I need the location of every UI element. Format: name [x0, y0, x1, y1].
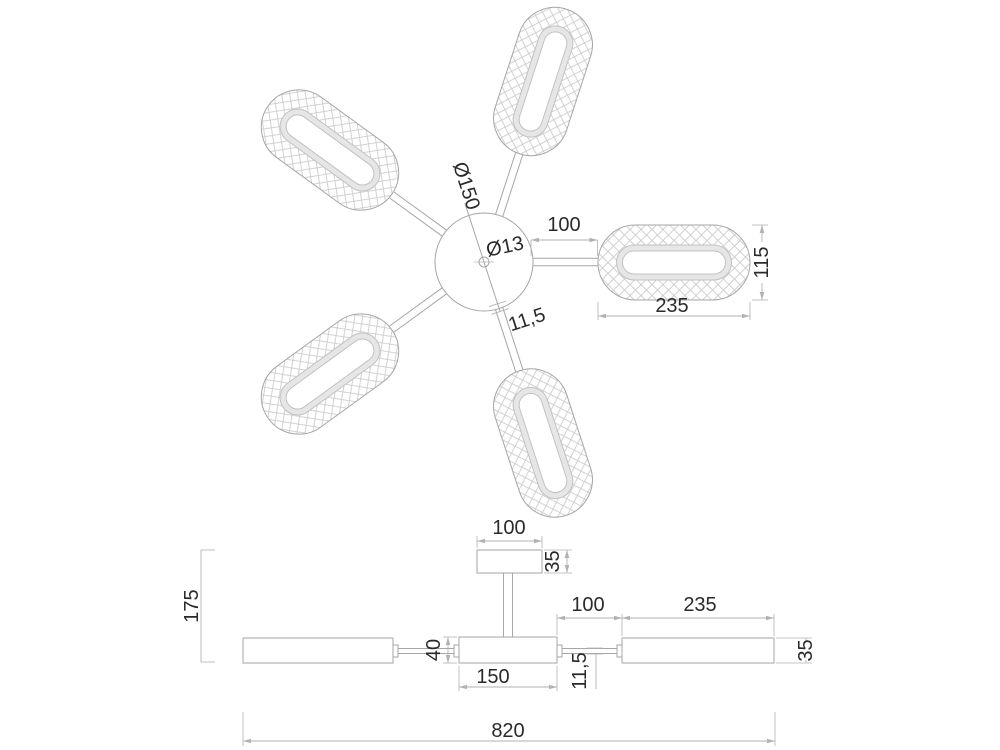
dim-label-arm-length-side: 100	[571, 594, 604, 616]
dim-body-height: 40	[423, 637, 457, 663]
dim-canopy-width: 100	[477, 517, 542, 548]
dim-label-canopy-width: 100	[492, 517, 525, 539]
dim-arm-length-side: 100	[557, 594, 622, 636]
shade-bottom-top-view	[484, 359, 602, 527]
dim-overall-height: 175	[181, 550, 215, 662]
dim-body-width: 150	[459, 666, 557, 691]
dim-label-arm-length-top: 100	[547, 214, 580, 236]
dim-label-shade-length-side: 235	[683, 594, 716, 616]
dim-shade-length-top: 235	[598, 295, 750, 320]
lamp-dimension-drawing: 100 235 115 11,5 Ø150 Ø13	[0, 0, 1000, 750]
top-view: 100 235 115 11,5 Ø150 Ø13	[246, 0, 773, 527]
dim-label-hub-diameter: Ø150	[448, 159, 484, 212]
dim-label-shade-width-top: 115	[751, 247, 773, 279]
body-side-view	[459, 637, 557, 663]
dim-label-shade-length-top: 235	[655, 295, 688, 317]
shade-right-top-view	[598, 225, 750, 300]
dim-canopy-height: 35	[542, 550, 572, 573]
dim-label-overall-width: 820	[491, 720, 524, 742]
dim-shade-length-side: 235	[622, 594, 774, 636]
canopy-side-view	[477, 550, 542, 573]
dim-arm-width-side: 11,5	[569, 648, 603, 690]
shade-upper-left-top-view	[246, 75, 413, 225]
shade-lower-left-top-view	[246, 299, 413, 449]
dim-label-shade-height-side: 35	[795, 639, 817, 661]
dim-label-body-width: 150	[476, 666, 509, 688]
dim-label-overall-height: 175	[181, 589, 203, 622]
shade-right-side-view	[622, 638, 774, 663]
dim-shade-width-top: 115	[751, 225, 773, 300]
dim-overall-width: 820	[243, 712, 775, 746]
technical-drawing-page: 100 235 115 11,5 Ø150 Ø13	[0, 0, 1000, 750]
side-view: 100 35 175 40 150	[181, 517, 817, 746]
dim-label-body-height: 40	[423, 639, 445, 661]
dim-label-canopy-height: 35	[542, 550, 564, 572]
shade-top-top-view	[484, 0, 602, 165]
stem-side-view	[504, 573, 513, 637]
dim-label-arm-width-side: 11,5	[569, 652, 591, 689]
shade-left-side-view	[243, 638, 393, 663]
dim-label-arm-width-top: 11,5	[506, 304, 548, 336]
dim-arm-length-top: 100	[531, 214, 598, 256]
dim-shade-height-side: 35	[776, 638, 817, 663]
